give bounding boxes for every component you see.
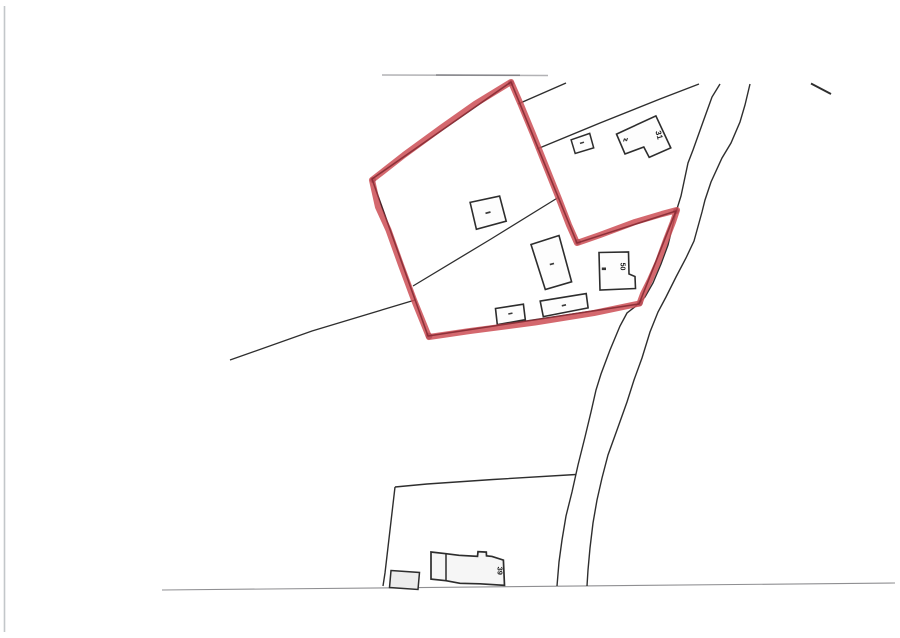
- svg-text:50: 50: [619, 263, 626, 271]
- svg-text:39: 39: [495, 567, 504, 575]
